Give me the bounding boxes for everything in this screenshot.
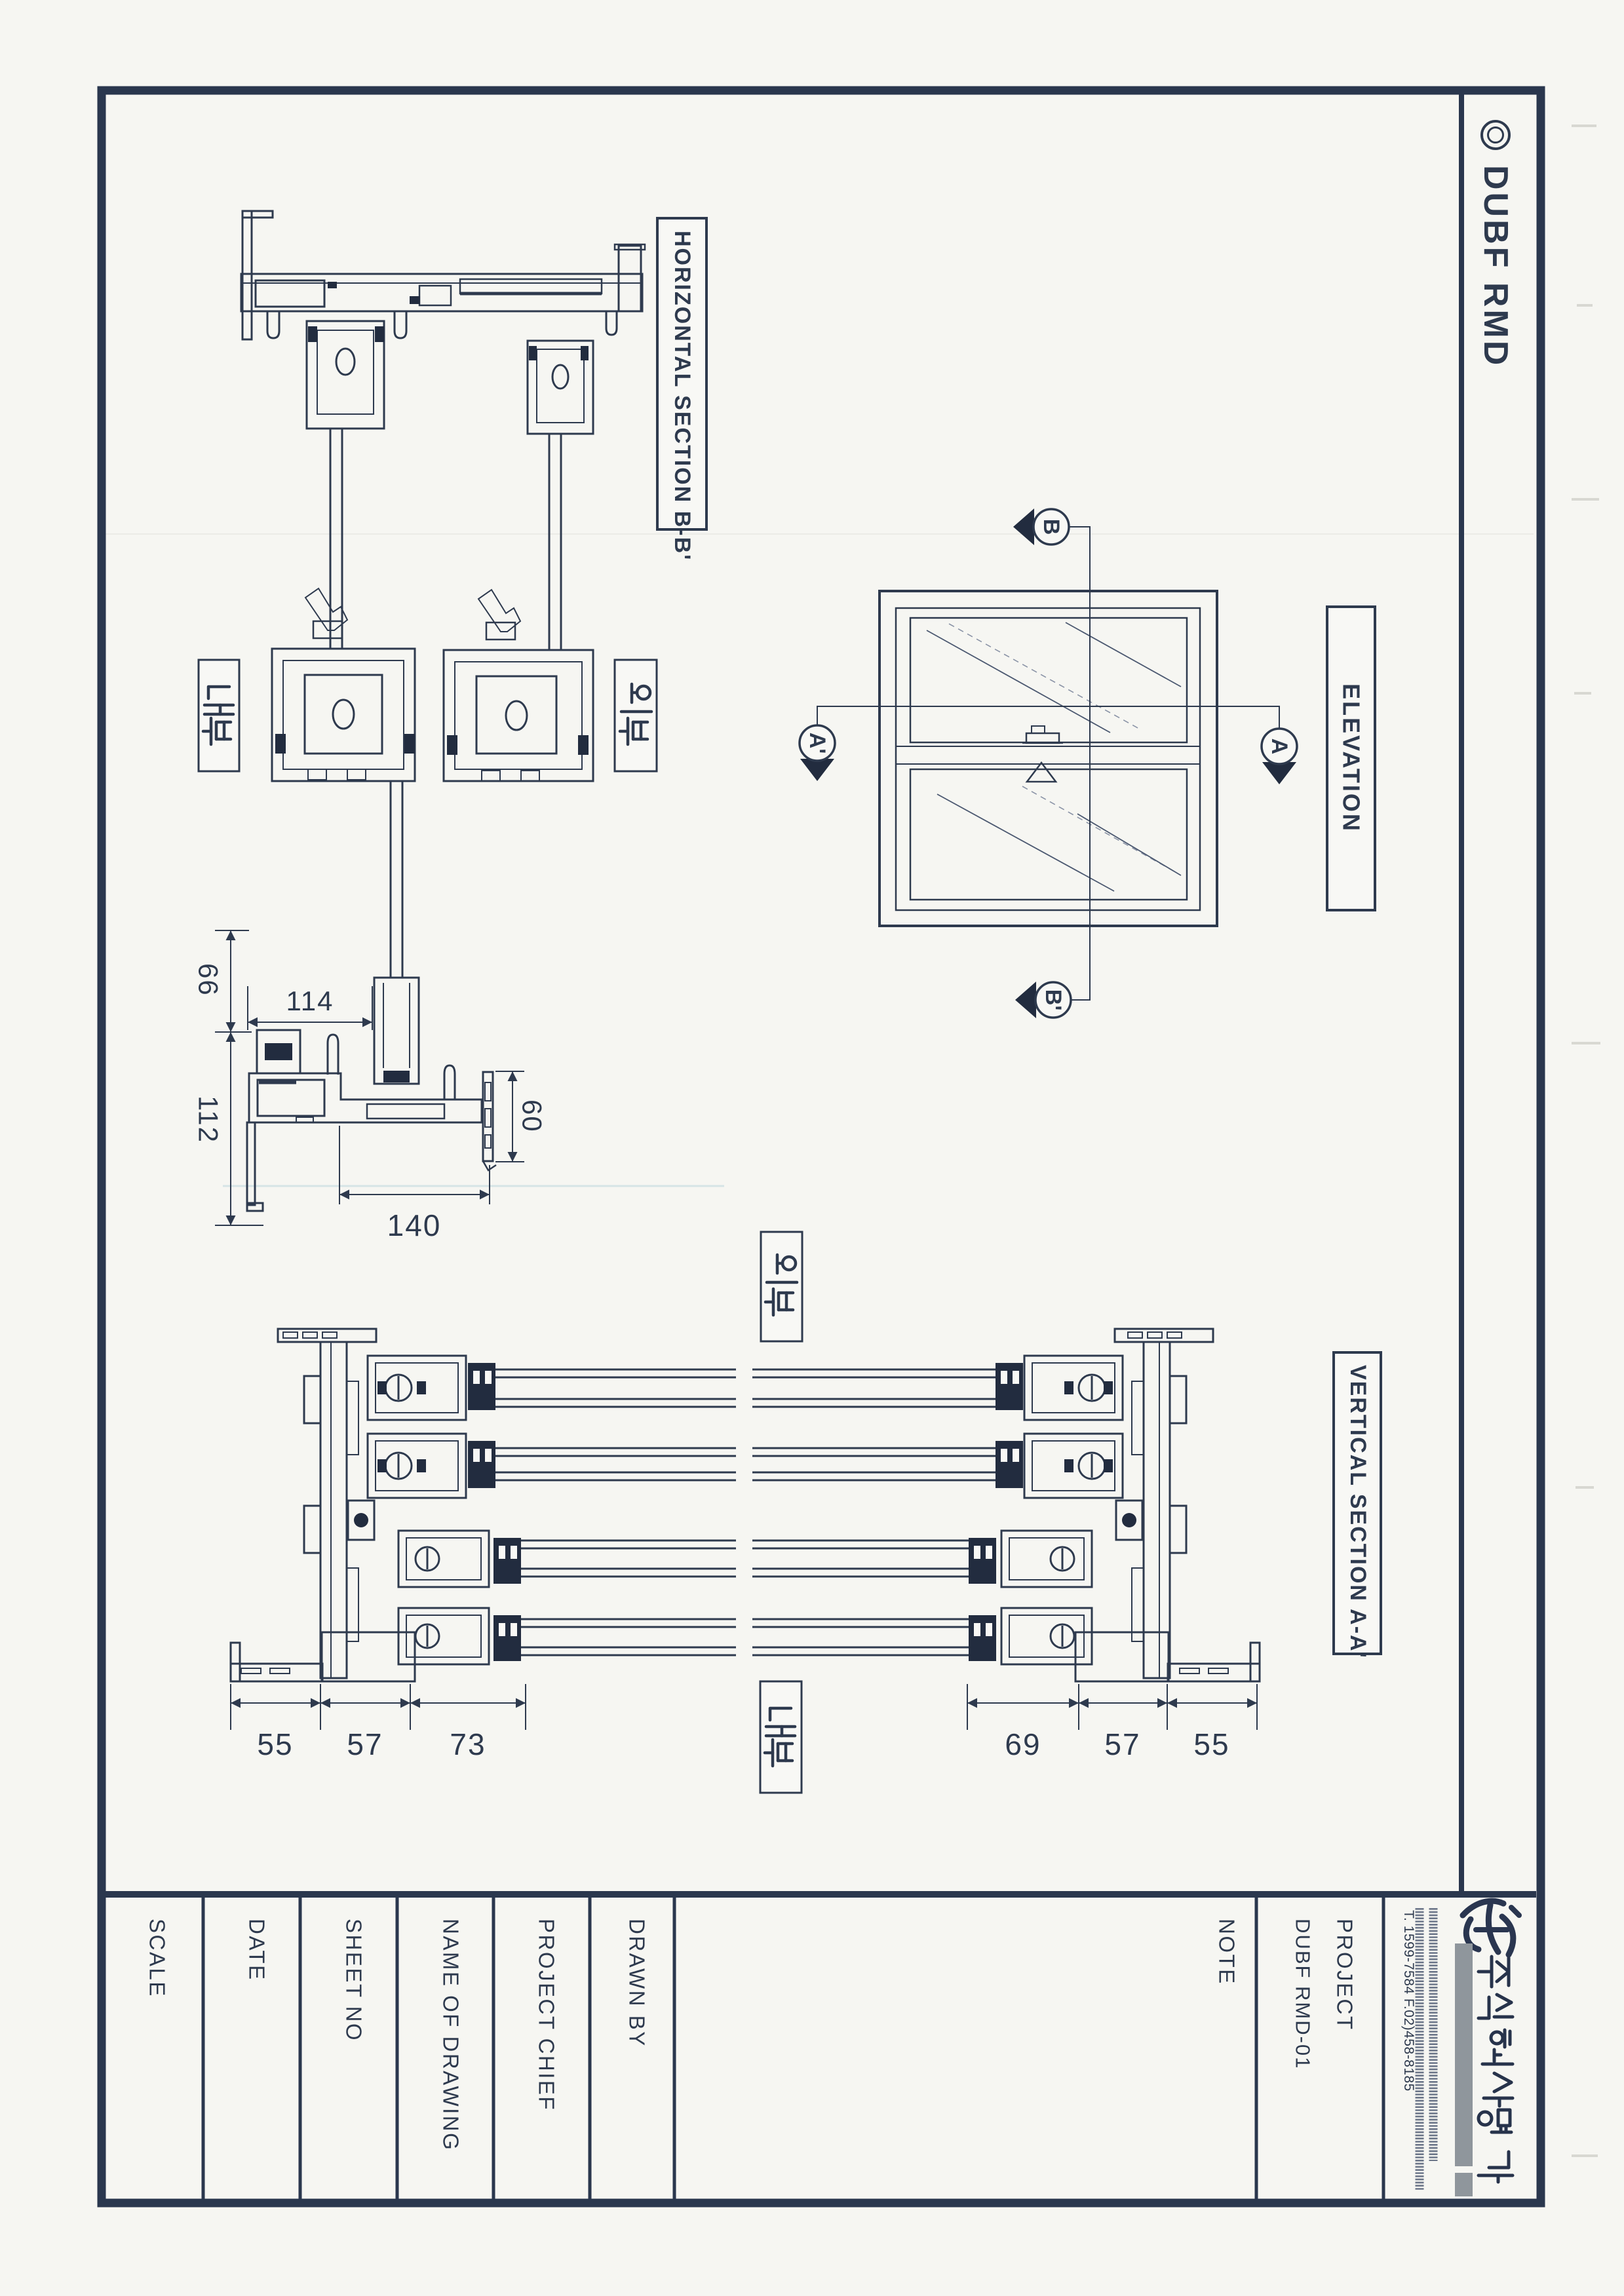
- dim-69-right: 69: [1005, 1727, 1041, 1761]
- project-number: DUBF RMD-01: [1292, 1919, 1315, 2069]
- dim-112: 112: [193, 1096, 224, 1143]
- phone-fax: T. 1599-7584 F.02)458-8185: [1401, 1910, 1416, 2092]
- dim-140: 140: [387, 1208, 442, 1242]
- cell-name-of-drawing: NAME OF DRAWING: [439, 1919, 463, 2151]
- vs-exterior-label: 외부: [761, 1232, 802, 1341]
- vertical-section-label: VERTICAL SECTION A-A': [1345, 1365, 1370, 1659]
- horizontal-section-label: HORIZONTAL SECTION B-B': [670, 231, 695, 561]
- cell-scale: SCALE: [145, 1919, 170, 1998]
- cell-project: PROJECT: [1333, 1919, 1357, 2031]
- vs-interior-label: 내부: [760, 1681, 802, 1793]
- marker-b-prime: B': [1041, 989, 1066, 1011]
- horizontal-section-title: HORIZONTAL SECTION B-B': [657, 218, 706, 561]
- cell-drawn-by: DRAWN BY: [625, 1919, 649, 2048]
- dim-114: 114: [286, 985, 334, 1016]
- marker-a: A: [1267, 738, 1292, 755]
- marker-b: B: [1039, 519, 1064, 535]
- marker-a-prime: A': [805, 733, 830, 754]
- dim-60: 60: [517, 1100, 548, 1133]
- dim-73-left: 73: [450, 1727, 486, 1761]
- cell-date: DATE: [245, 1919, 269, 1981]
- dim-66: 66: [193, 963, 224, 997]
- paper-background: [0, 0, 1624, 2296]
- dim-55-left: 55: [257, 1727, 293, 1761]
- brand-name: DUBF RMD: [1477, 165, 1515, 368]
- elevation-title: ELEVATION: [1327, 607, 1375, 910]
- vertical-section-title: VERTICAL SECTION A-A': [1334, 1352, 1381, 1659]
- cell-note: NOTE: [1215, 1919, 1239, 1985]
- hs-interior-label: 내부: [199, 660, 239, 771]
- drawing-sheet: DUBF RMD ◎: [0, 0, 1624, 2296]
- dim-57-right: 57: [1104, 1727, 1140, 1761]
- stamp-divider-bar: [1455, 1943, 1473, 2166]
- elevation-label: ELEVATION: [1338, 683, 1365, 833]
- dim-57-left: 57: [347, 1727, 383, 1761]
- stamp-divider-bar-tail: [1455, 2173, 1473, 2196]
- scanned-drawing-page: DUBF RMD ◎: [0, 0, 1624, 2296]
- cell-sheet-no: SHEET NO: [342, 1919, 366, 2042]
- dim-55-right: 55: [1193, 1727, 1229, 1761]
- cell-project-chief: PROJECT CHIEF: [535, 1919, 559, 2111]
- hs-exterior-label: 외부: [615, 660, 657, 771]
